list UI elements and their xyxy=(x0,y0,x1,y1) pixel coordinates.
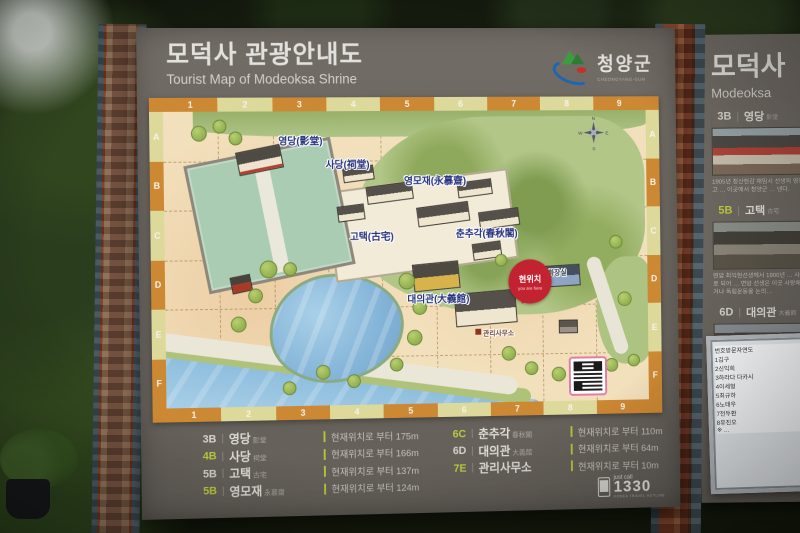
map-label-daeuigwan: 대의관(大義館) xyxy=(407,290,469,306)
map-label-gotaek: 고택(古宅) xyxy=(350,228,394,243)
grid-cell-6: 6 xyxy=(434,97,487,111)
tree-icon xyxy=(525,361,539,375)
grid-cell-2: 2 xyxy=(221,406,276,421)
yeongdang-hall xyxy=(235,144,284,176)
phone-icon xyxy=(597,477,610,497)
photo-background: 모덕사 Modeoksa 3B|영당影堂1905년 정산현감 재임시 선생의 영… xyxy=(0,0,800,533)
legend-distance: 현재위치로 부터 166m xyxy=(331,445,419,461)
legend-separator: | xyxy=(471,463,474,474)
legend-distance: 현재위치로 부터 110m xyxy=(578,423,663,438)
grid-cell-6: 6 xyxy=(437,402,490,417)
tree-icon xyxy=(213,120,227,134)
grid-cell-7: 7 xyxy=(491,401,544,416)
grid-cell-B: B xyxy=(150,161,165,211)
grid-cell-8: 8 xyxy=(540,96,593,110)
legend-grid-code: 6D xyxy=(447,445,466,457)
map-label-yeongdang: 영당(影堂) xyxy=(278,133,322,148)
compass-icon: N E S W xyxy=(577,114,610,151)
tree-icon xyxy=(398,273,415,290)
tree-icon xyxy=(283,262,297,276)
legend-distance: 현재위치로 부터 10m xyxy=(578,457,659,472)
panel-section-header: 6D|대의관大義館 xyxy=(713,303,800,321)
visitor-table-header: 연도 xyxy=(742,348,753,354)
panel-section: 5B|고택古宅면암 최익현선생께서 1900년 … 사랑채 · 영모재로 되어 … xyxy=(712,201,800,297)
legend-separator: | xyxy=(471,446,474,457)
legend-hanja: 永慕齋 xyxy=(264,489,285,496)
hotline-number: 1330 xyxy=(614,480,666,495)
legend-name: 사당祠堂 xyxy=(229,446,323,465)
map-label-sadang: 사당(祠堂) xyxy=(325,156,369,171)
legend-distance: 현재위치로 부터 137m xyxy=(331,463,419,479)
panel-grid-code: 3B xyxy=(711,110,731,122)
side-panel-title: 모덕사 xyxy=(711,43,800,84)
tree-icon xyxy=(260,260,278,278)
grid-cell-D: D xyxy=(647,254,661,302)
panel-separator: | xyxy=(738,307,741,318)
legend-hanja: 祠堂 xyxy=(253,455,267,462)
grid-cell-E: E xyxy=(648,303,662,351)
tree-icon xyxy=(609,235,622,249)
panel-grid-code: 5B xyxy=(712,204,732,216)
panel-section-name: 고택 xyxy=(745,202,765,218)
building xyxy=(559,319,578,333)
side-panel-subtitle: Modeoksa xyxy=(711,84,800,101)
logo-name-english: CHEONGYANG-GUN xyxy=(597,77,652,82)
panel-section-name: 영당 xyxy=(744,108,764,124)
tree-icon xyxy=(502,346,517,361)
visitor-table-frame: 번호방문자연도1김구2신익희3하라다 다카시4이세형5최규하6노태우7전두환8유… xyxy=(706,332,800,494)
legend-separator: | xyxy=(221,434,224,445)
you-are-here-english: you are here xyxy=(518,285,542,290)
building xyxy=(412,260,461,292)
grid-cell-D: D xyxy=(151,260,166,310)
section-description: 면암 최익현선생께서 1900년 … 사랑채 · 영모재로 되어 … 면암 선생… xyxy=(713,271,800,296)
grid-cell-C: C xyxy=(647,206,661,254)
legend-name: 관리사무소 xyxy=(479,458,571,477)
grid-cell-A: A xyxy=(149,112,164,162)
sign-title-korean: 모덕사 관광안내도 xyxy=(166,35,363,71)
grid-cell-3: 3 xyxy=(276,405,330,420)
panel-separator: | xyxy=(737,205,740,216)
grid-cell-7: 7 xyxy=(487,97,540,111)
legend-name: 대의관大義館 xyxy=(478,441,570,460)
panel-section-hanja: 大義館 xyxy=(778,307,796,316)
tree-icon xyxy=(628,354,640,367)
tree-icon xyxy=(231,316,247,332)
legend-hanja: 影堂 xyxy=(253,438,267,445)
grid-cell-1: 1 xyxy=(166,407,221,422)
tree-icon xyxy=(495,254,508,267)
panel-section-name: 대의관 xyxy=(746,304,777,320)
legend-grid-code: 5B xyxy=(197,468,217,480)
legend-name: 춘추각春秋閣 xyxy=(478,424,570,443)
panel-section-hanja: 影堂 xyxy=(766,111,778,120)
legend-grid-code: 7E xyxy=(447,463,466,475)
visitor-table-note: ※ … xyxy=(717,428,730,434)
grid-cell-1: 1 xyxy=(163,98,218,112)
legend-name: 고택古宅 xyxy=(229,463,323,482)
grid-cell-2: 2 xyxy=(218,98,273,112)
tree-icon xyxy=(248,288,263,303)
tree-icon xyxy=(407,330,423,346)
svg-text:N: N xyxy=(592,116,596,122)
grid-cell-E: E xyxy=(151,310,166,360)
grid-cell-9: 9 xyxy=(596,399,649,414)
side-info-panel: 모덕사 Modeoksa 3B|영당影堂1905년 정산현감 재임시 선생의 영… xyxy=(697,33,800,503)
map-label-chunchugak: 춘추각(春秋閣) xyxy=(456,225,518,240)
legend-divider-bar xyxy=(571,461,573,472)
grid-cell-8: 8 xyxy=(544,400,597,415)
map-label-office: 관리사무소 xyxy=(475,328,514,338)
legend-divider-bar xyxy=(570,444,572,455)
legend-distance: 현재위치로 부터 175m xyxy=(331,428,419,444)
legend-separator: | xyxy=(222,468,225,479)
grid-cell-4: 4 xyxy=(330,404,384,419)
map-label-yeongmojae: 영모재(永慕齋) xyxy=(404,172,466,187)
tree-icon xyxy=(228,131,242,145)
hotline-1330-logo: just call 1330 KOREA TRAVEL HOTLINE xyxy=(597,474,665,499)
legend-grid-code: 6C xyxy=(447,428,466,440)
section-photo xyxy=(713,220,800,269)
svg-text:W: W xyxy=(578,131,583,137)
section-description: 1905년 정산현감 재임시 선생의 영정을 봉안하고 … 이곳에서 청양군 …… xyxy=(712,177,800,194)
panel-section: 3B|영당影堂1905년 정산현감 재임시 선생의 영정을 봉안하고 … 이곳에… xyxy=(711,107,800,195)
grid-cell-B: B xyxy=(646,158,660,206)
tree-icon xyxy=(617,291,631,306)
legend-divider-bar xyxy=(323,449,325,460)
legend-distance: 현재위치로 부터 124m xyxy=(331,480,419,496)
legend-hanja: 大義館 xyxy=(512,449,532,456)
grid-cell-9: 9 xyxy=(593,96,646,110)
legend-divider-bar xyxy=(324,483,326,494)
legend-grid-code: 4B xyxy=(197,451,217,463)
legend-distance: 현재위치로 부터 64m xyxy=(578,440,659,455)
grid-cell-C: C xyxy=(150,211,165,261)
flower-pot xyxy=(6,479,50,519)
legend-hanja: 古宅 xyxy=(253,472,267,479)
legend-column-left: 3B|영당影堂현재위치로 부터 175m4B|사당祠堂현재위치로 부터 166m… xyxy=(197,426,420,500)
sign-title-block: 모덕사 관광안내도 Tourist Map of Modeoksa Shrine xyxy=(166,35,363,87)
section-photo xyxy=(712,126,800,175)
svg-text:E: E xyxy=(605,131,609,137)
panel-grid-code: 6D xyxy=(713,306,733,318)
grid-cell-A: A xyxy=(646,110,660,158)
grid-cell-F: F xyxy=(152,359,167,409)
grid-cell-4: 4 xyxy=(326,97,380,111)
legend-divider-bar xyxy=(323,466,325,477)
panel-separator: | xyxy=(736,111,739,122)
tree-icon xyxy=(191,126,207,142)
visitor-table: 번호방문자연도1김구2신익희3하라다 다카시4이세형5최규하6노태우7전두환8유… xyxy=(714,342,800,434)
qr-code xyxy=(569,356,608,396)
legend-name: 영모재永慕齋 xyxy=(229,481,323,500)
sign-title-english: Tourist Map of Modeoksa Shrine xyxy=(166,72,363,87)
legend-separator: | xyxy=(221,451,224,462)
legend-column-right: 6C|춘추각春秋閣현재위치로 부터 110m6D|대의관大義館현재위치로 부터 … xyxy=(447,421,663,477)
legend-separator: | xyxy=(222,486,225,497)
panel-section-header: 5B|고택古宅 xyxy=(712,201,800,219)
grid-cell-5: 5 xyxy=(384,403,438,418)
grid-cell-F: F xyxy=(648,351,662,399)
tourist-map-sign: 모덕사 관광안내도 Tourist Map of Modeoksa Shrine… xyxy=(136,28,680,520)
legend-divider-bar xyxy=(570,426,572,437)
legend-hanja: 春秋閣 xyxy=(512,432,532,439)
grid-cell-3: 3 xyxy=(272,97,326,111)
logo-name-korean: 청양군 xyxy=(597,49,653,75)
you-are-here-korean: 현위치 xyxy=(519,272,542,284)
panel-section-hanja: 古宅 xyxy=(767,205,779,214)
cheongyang-logo-icon xyxy=(551,50,591,81)
map-canvas: N E S W 현위치 you are here 영당(影堂)사당(祠堂)영모재… xyxy=(163,110,649,409)
svg-text:S: S xyxy=(592,146,596,151)
legend-name: 영당影堂 xyxy=(229,429,323,448)
legend-divider-bar xyxy=(323,431,325,442)
grid-cell-5: 5 xyxy=(380,97,434,111)
legend-grid-code: 3B xyxy=(197,433,217,445)
legend-grid-code: 5B xyxy=(197,485,217,497)
tree-icon xyxy=(552,367,566,382)
legend-separator: | xyxy=(471,428,474,439)
hotline-subtext: KOREA TRAVEL HOTLINE xyxy=(614,493,665,498)
illustrated-map: 123456789 123456789 ABCDEF ABCDEF xyxy=(149,96,663,423)
panel-section-header: 3B|영당影堂 xyxy=(711,107,800,125)
cheongyang-county-logo: 청양군 CHEONGYANG-GUN xyxy=(551,49,652,81)
